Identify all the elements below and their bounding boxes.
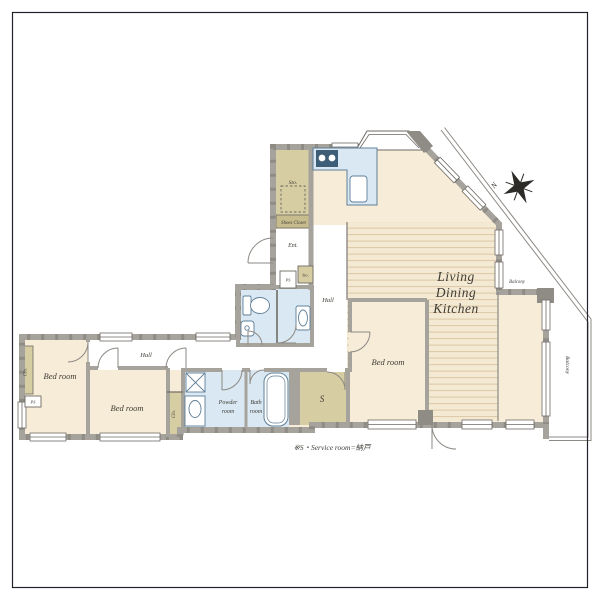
- ps-entrance-label: PS: [285, 278, 292, 283]
- balcony-upper-label: Balcony: [509, 280, 526, 285]
- powder-label-line2: room: [222, 409, 235, 415]
- pier-ldk-sw: [418, 410, 433, 425]
- ldk-label-line2: Dining: [435, 285, 477, 300]
- window-ldk-bottom-1: [462, 420, 492, 429]
- floor-plan-drawing: N Bed room Bed room Bed room Living Dini…: [0, 0, 600, 600]
- shoes-closet-label: Shoes Closet: [281, 221, 306, 226]
- balcony-right-label: Balcony: [564, 356, 570, 375]
- entrance-door: [248, 238, 273, 263]
- bath-label-line1: Bath: [250, 400, 261, 406]
- window-balcony-wall-1: [495, 230, 503, 255]
- bedroom3-label: Bed room: [372, 357, 405, 367]
- ps-left-label: PS: [30, 400, 37, 405]
- compass-north-label: N: [488, 180, 499, 191]
- window-balcony-wall-2: [495, 262, 503, 288]
- window-hall-top-1: [100, 333, 132, 341]
- corridor-floor: [238, 345, 312, 370]
- window-ldk-bottom-2: [506, 420, 534, 429]
- toilet-tank: [243, 296, 251, 315]
- window-bedroom3-bottom: [368, 420, 416, 429]
- kitchen-sink: [350, 176, 367, 202]
- ldk-label-line1: Living: [436, 269, 475, 284]
- window-hall-top-2: [196, 333, 230, 341]
- service-label: S: [320, 394, 325, 404]
- window-bedroom1-bottom: [30, 433, 66, 441]
- ldk-service-door: [432, 425, 456, 449]
- powder-fixtures: [185, 373, 205, 426]
- window-east-wall-2: [542, 342, 550, 416]
- window-bedroom2-bottom: [100, 433, 160, 441]
- pier-balcony-s: [543, 424, 549, 439]
- entrance-label: Ent.: [287, 243, 298, 249]
- bedroom1-label: Bed room: [44, 371, 77, 381]
- hall-lower-label: Hall: [139, 352, 152, 359]
- hall-west-floor: [88, 340, 238, 370]
- bath-label-line2: room: [250, 409, 263, 415]
- footnote: ※S・Service room=納戸: [293, 443, 372, 452]
- powder-label-line1: Powder: [218, 400, 238, 406]
- storage-room-label: Sto.: [289, 180, 297, 186]
- window-east-wall-1: [542, 300, 550, 330]
- bedroom2-label: Bed room: [111, 403, 144, 413]
- hall-upper-label: Hall: [321, 297, 334, 304]
- storage-small-label: Sto.: [302, 273, 309, 278]
- bathtub: [264, 373, 288, 426]
- floor-plan-page: N Bed room Bed room Bed room Living Dini…: [0, 0, 600, 600]
- closet-right-label: Clo.: [172, 410, 177, 418]
- closet-left-label: Clo.: [24, 368, 29, 376]
- ldk-label-line3: Kitchen: [432, 301, 479, 316]
- wall-bath-service: [289, 370, 300, 425]
- toilet-bowl: [251, 298, 270, 314]
